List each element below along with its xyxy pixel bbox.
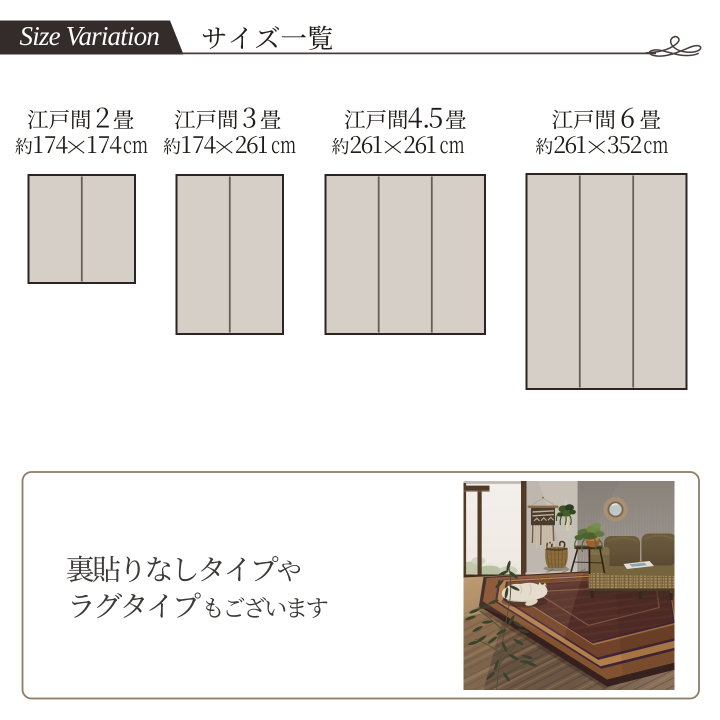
- svg-text:Size Variation: Size Variation: [20, 21, 160, 51]
